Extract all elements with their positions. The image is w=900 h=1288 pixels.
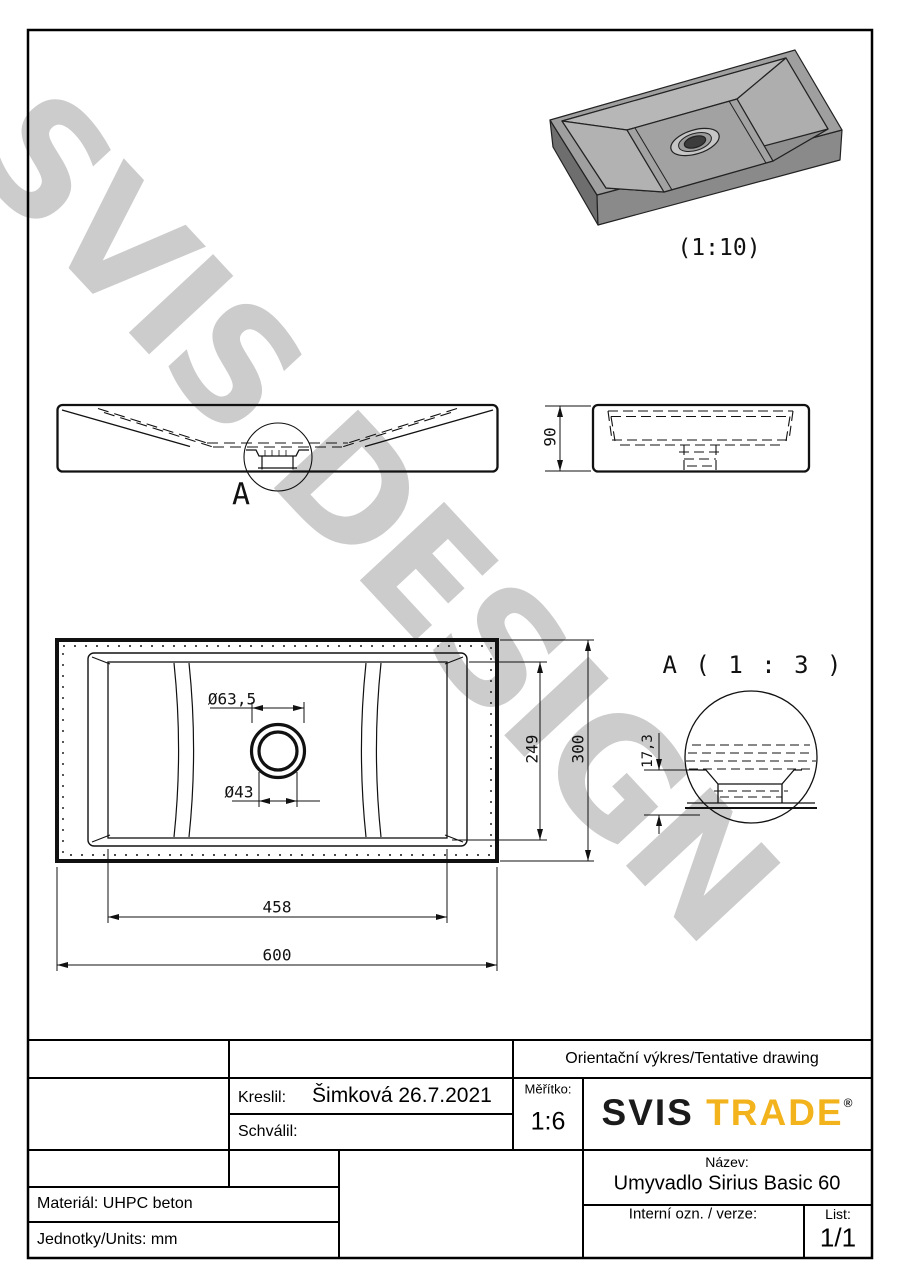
dim-overall-length-label: 600	[263, 946, 292, 965]
iso-view	[550, 50, 842, 225]
kreslil-label: Kreslil:	[238, 1089, 286, 1107]
detail-marker-label: A	[232, 478, 250, 513]
logo-reg-mark: ®	[844, 1096, 853, 1110]
dim-height-label: 90	[541, 427, 560, 446]
svis-trade-logo: SVIS TRADE®	[602, 1092, 853, 1134]
drain-inner-circle	[259, 732, 297, 770]
dim-drain-outer-label: Ø63,5	[208, 690, 256, 709]
basin-wall-curves	[174, 663, 381, 837]
detail-title-label: A ( 1 : 3 )	[663, 651, 844, 679]
dim-overall-width-label: 300	[569, 735, 588, 764]
dim-drain-recess-label: 17,3	[640, 734, 656, 768]
side-view	[545, 405, 809, 472]
plan-dimensions	[57, 640, 594, 971]
material-label: Materiál: UHPC beton	[37, 1195, 193, 1213]
nazev-value: Umyvadlo Sirius Basic 60	[614, 1173, 841, 1196]
kreslil-row: Kreslil: Šimková 26.7.2021	[238, 1084, 492, 1108]
title-block-lines	[28, 1040, 872, 1258]
logo-svis: SVIS	[602, 1092, 694, 1133]
interni-label: Interní ozn. / verze:	[629, 1206, 757, 1223]
dim-drain-hole-label: Ø43	[225, 783, 254, 802]
detail-view-a	[644, 691, 817, 834]
nazev-label: Název:	[705, 1154, 749, 1170]
units-label: Jednotky/Units: mm	[37, 1231, 177, 1249]
tentative-drawing-label: Orientační výkres/Tentative drawing	[565, 1050, 818, 1068]
schvalil-label: Schválil:	[238, 1123, 298, 1141]
list-value: 1/1	[820, 1223, 856, 1254]
meritko-value: 1:6	[531, 1108, 566, 1137]
list-label: List:	[825, 1206, 851, 1222]
front-view	[58, 405, 498, 491]
dim-basin-length-label: 458	[263, 898, 292, 917]
logo-trade: TRADE	[706, 1092, 843, 1133]
kreslil-value: Šimková 26.7.2021	[312, 1084, 492, 1108]
iso-scale-label: (1:10)	[677, 235, 760, 261]
detail-circle-a	[244, 423, 312, 491]
dim-basin-width-label: 249	[523, 735, 542, 764]
page-border	[28, 30, 872, 1258]
plan-view	[57, 640, 594, 971]
meritko-label: Měřítko:	[525, 1082, 572, 1097]
